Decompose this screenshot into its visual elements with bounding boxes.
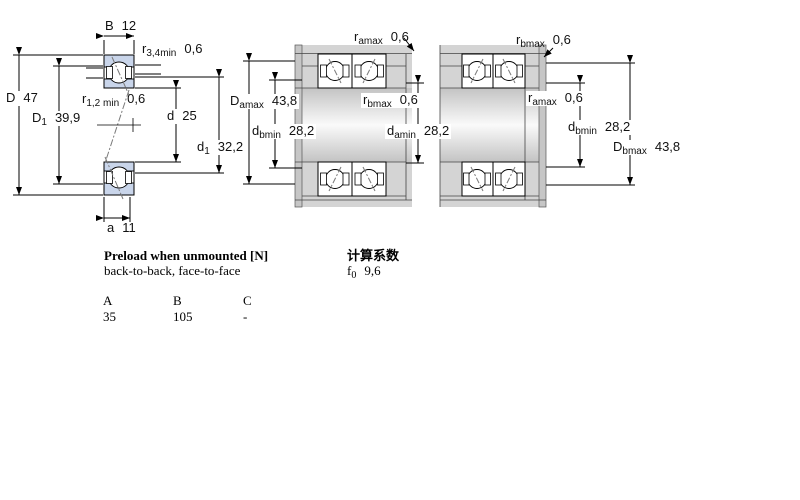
calculation-factor-section: 计算系数 f09,6 (347, 249, 399, 280)
bearing-pair-top (318, 54, 386, 88)
dim-label-D1: D139,9 (30, 111, 82, 126)
dim-label-r34min: r3,4min0,6 (142, 42, 202, 57)
bearing-pair-bottom (462, 162, 525, 196)
preload-table: A B C 35 105 - (103, 293, 313, 325)
dim-label-ramax-middle: ramax0,6 (354, 30, 409, 45)
preload-value-a: 35 (103, 309, 173, 325)
preload-value-c: - (243, 309, 313, 325)
dim-label-ramax-right: ramax0,6 (526, 91, 585, 106)
dim-label-B: B12 (105, 19, 136, 34)
preload-table-header-row: A B C (103, 293, 313, 309)
dim-label-dbmin-middle: dbmin28,2 (250, 124, 316, 139)
shaft-block (440, 88, 539, 162)
preload-section: Preload when unmounted [N] back-to-back,… (104, 249, 268, 278)
dim-label-dbmin-right: dbmin28,2 (566, 120, 632, 135)
dim-label-a: a11 (107, 221, 136, 236)
calculation-factor-f0: f09,6 (347, 264, 399, 280)
dim-label-d: d25 (165, 109, 199, 124)
dim-label-rbmax-right: rbmax0,6 (516, 33, 571, 48)
dim-label-damin: damin28,2 (385, 124, 451, 139)
bearing-pair-bottom (318, 162, 386, 196)
preload-col-c-header: C (243, 293, 313, 309)
single-bearing-figure (13, 36, 224, 222)
bearing-pair-top (462, 54, 525, 88)
preload-table-value-row: 35 105 - (103, 309, 313, 325)
dim-label-Damax: Damax43,8 (228, 94, 299, 109)
preload-subtitle: back-to-back, face-to-face (104, 264, 268, 278)
right-dimension-lines (544, 48, 635, 185)
back-to-back-figure (243, 38, 424, 207)
preload-col-b-header: B (173, 293, 243, 309)
dim-label-D: D47 (4, 91, 40, 106)
dim-label-r12min: r1,2 min0,6 (82, 92, 145, 107)
preload-col-a-header: A (103, 293, 173, 309)
dim-label-d1: d132,2 (195, 140, 245, 155)
dim-label-rbmax-middle: rbmax0,6 (361, 93, 420, 108)
preload-title: Preload when unmounted [N] (104, 249, 268, 263)
dim-label-Dbmax: Dbmax43,8 (611, 140, 682, 155)
calculation-factor-title: 计算系数 (347, 249, 399, 263)
preload-value-b: 105 (173, 309, 243, 325)
bearing-datasheet-drawing: B12 D47 D139,9 r3,4min0,6 r1,2 min0,6 d2… (0, 0, 800, 500)
